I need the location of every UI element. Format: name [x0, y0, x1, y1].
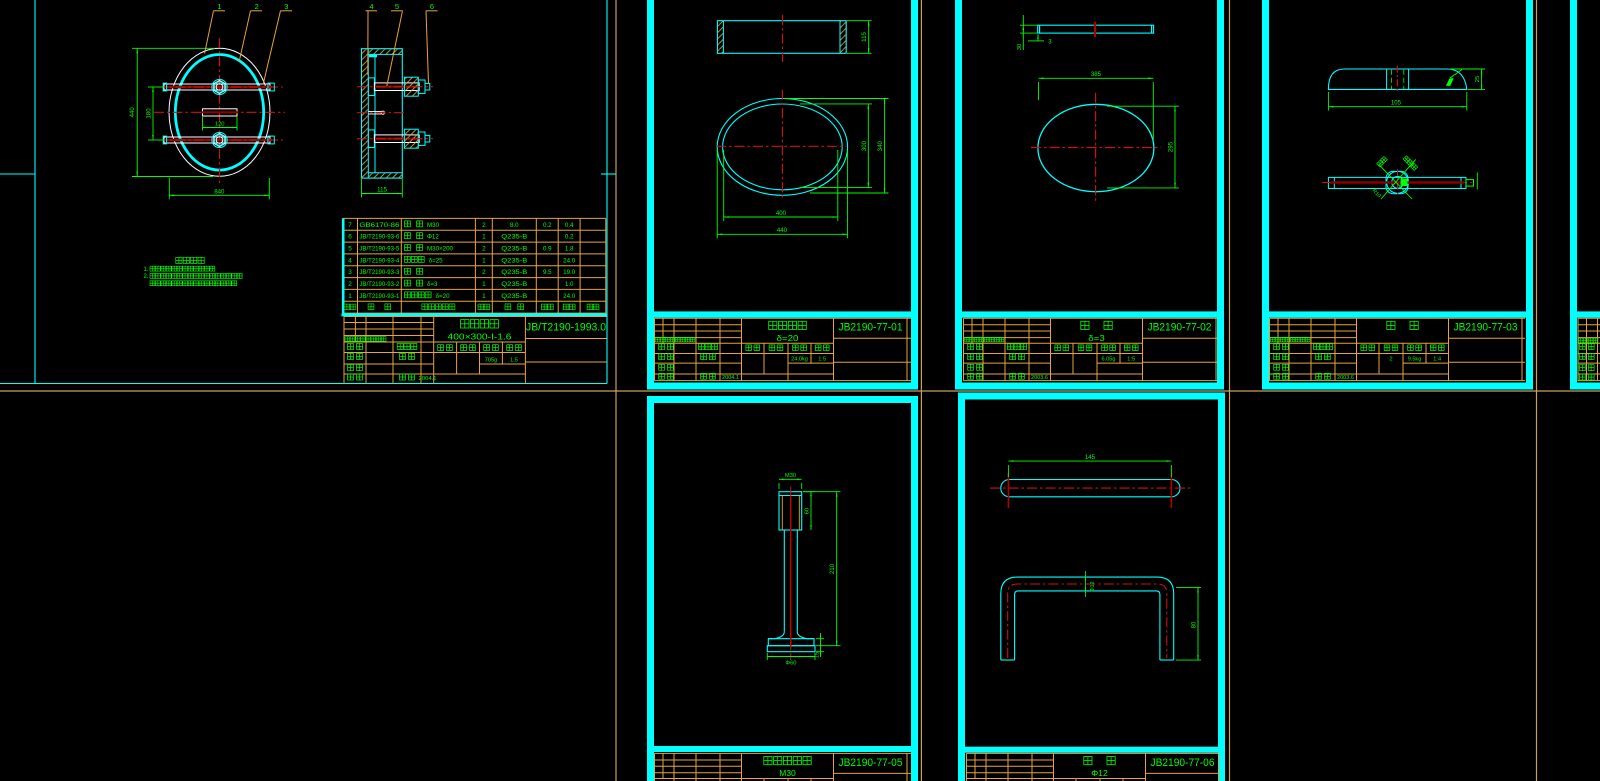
- svg-text:JB/T2190-93-1: JB/T2190-93-1: [359, 294, 400, 300]
- svg-text:Q235-B: Q235-B: [501, 234, 527, 241]
- svg-text:0.2: 0.2: [543, 222, 552, 229]
- svg-text:8.0: 8.0: [510, 222, 519, 229]
- svg-text:2003.6: 2003.6: [1031, 375, 1048, 381]
- svg-text:0.4: 0.4: [565, 222, 574, 229]
- svg-text:7: 7: [348, 222, 352, 229]
- svg-text:300: 300: [861, 140, 868, 151]
- svg-text:2004.1: 2004.1: [419, 376, 437, 382]
- svg-text:2003.6: 2003.6: [1337, 375, 1354, 381]
- svg-text:30: 30: [1017, 44, 1023, 50]
- svg-text:385: 385: [1091, 71, 1102, 78]
- svg-text:6: 6: [348, 234, 352, 241]
- svg-text:295: 295: [1167, 141, 1174, 152]
- svg-text:Φ60: Φ60: [785, 661, 796, 667]
- svg-text:1: 1: [482, 281, 486, 288]
- svg-text:JB/T2190-93-3: JB/T2190-93-3: [359, 270, 400, 276]
- svg-text:340: 340: [877, 141, 884, 152]
- svg-text:1:5: 1:5: [510, 357, 518, 363]
- svg-text:JB2190-77-05: JB2190-77-05: [839, 757, 903, 769]
- svg-text:JB2190-77-03: JB2190-77-03: [1454, 322, 1518, 334]
- svg-text:1:5: 1:5: [818, 357, 826, 363]
- svg-text:80: 80: [1191, 621, 1198, 628]
- svg-text:120: 120: [215, 121, 225, 127]
- svg-text:180: 180: [145, 108, 152, 119]
- svg-text:δ=20: δ=20: [436, 293, 450, 300]
- svg-text:JB/T2190-93-4: JB/T2190-93-4: [359, 258, 400, 264]
- svg-text:2: 2: [255, 2, 259, 11]
- svg-text:1.: 1.: [144, 267, 149, 273]
- svg-text:5: 5: [395, 2, 399, 11]
- svg-text:Q235-B: Q235-B: [501, 246, 527, 253]
- svg-text:2: 2: [1389, 357, 1392, 363]
- svg-text:400×300-I-1.6: 400×300-I-1.6: [448, 333, 513, 342]
- svg-text:4: 4: [348, 257, 352, 264]
- svg-text:2004.1: 2004.1: [722, 375, 739, 381]
- svg-text:1: 1: [482, 293, 486, 300]
- svg-text:24.0kg: 24.0kg: [791, 357, 808, 363]
- svg-text:JB/T2190-93-5: JB/T2190-93-5: [359, 247, 400, 253]
- svg-text:δ=20: δ=20: [777, 334, 800, 343]
- svg-text:M30: M30: [427, 222, 440, 229]
- svg-text:1: 1: [217, 2, 221, 11]
- svg-text:JB2190-77-02: JB2190-77-02: [1148, 322, 1212, 334]
- svg-text:JB2190-77-01: JB2190-77-01: [839, 322, 903, 334]
- svg-text:M30×200: M30×200: [427, 246, 454, 253]
- svg-text:25: 25: [1475, 76, 1481, 82]
- svg-text:2.: 2.: [144, 274, 149, 280]
- svg-text:1:5: 1:5: [1127, 357, 1135, 363]
- svg-text:0.9: 0.9: [543, 246, 552, 253]
- svg-text:GB6170-86: GB6170-86: [359, 223, 400, 229]
- svg-text:1: 1: [348, 293, 352, 300]
- svg-text:Q235-B: Q235-B: [501, 257, 527, 264]
- svg-text:24.0: 24.0: [563, 293, 576, 300]
- svg-text:6.05g: 6.05g: [1102, 357, 1116, 363]
- svg-text:δ=25: δ=25: [429, 257, 443, 264]
- svg-text:60: 60: [805, 508, 811, 514]
- svg-text:145: 145: [1085, 454, 1096, 461]
- svg-text:Φ12: Φ12: [1090, 581, 1096, 591]
- svg-text:JB2190-77-06: JB2190-77-06: [1151, 757, 1215, 769]
- svg-text:3: 3: [348, 269, 352, 276]
- svg-text:Φ12: Φ12: [1091, 769, 1108, 778]
- svg-text:1: 1: [482, 257, 486, 264]
- svg-text:Q235-B: Q235-B: [501, 269, 527, 276]
- svg-text:19.0: 19.0: [563, 269, 576, 276]
- svg-text:1.8: 1.8: [565, 246, 574, 253]
- svg-text:4: 4: [369, 2, 373, 11]
- svg-text:Q235-B: Q235-B: [501, 281, 527, 288]
- svg-text:δ=3: δ=3: [427, 281, 438, 288]
- svg-text:115: 115: [377, 187, 387, 194]
- svg-text:9.5kg: 9.5kg: [1408, 357, 1422, 363]
- svg-text:210: 210: [829, 563, 836, 574]
- svg-text:M30: M30: [779, 769, 796, 778]
- svg-text:3: 3: [284, 2, 288, 11]
- svg-text:JB/T2190-93-6: JB/T2190-93-6: [359, 235, 400, 241]
- svg-text:9.5: 9.5: [543, 269, 552, 276]
- svg-text:2: 2: [482, 222, 486, 229]
- svg-text:5: 5: [348, 246, 352, 253]
- svg-text:440: 440: [777, 227, 788, 234]
- svg-text:Q235-B: Q235-B: [501, 293, 527, 300]
- svg-text:M30: M30: [785, 473, 796, 479]
- svg-text:105: 105: [1391, 100, 1402, 107]
- svg-text:Φ12: Φ12: [427, 234, 439, 241]
- svg-text:6: 6: [430, 2, 434, 11]
- svg-text:JB/T2190-1993.0: JB/T2190-1993.0: [526, 322, 606, 334]
- svg-text:840: 840: [214, 188, 225, 195]
- svg-text:1: 1: [482, 234, 486, 241]
- svg-text:1:4: 1:4: [1433, 357, 1441, 363]
- svg-text:400: 400: [776, 210, 787, 217]
- svg-text:1.0: 1.0: [565, 281, 574, 288]
- svg-text:JB/T2190-93-2: JB/T2190-93-2: [359, 282, 400, 288]
- svg-text:δ=3: δ=3: [1088, 334, 1105, 343]
- svg-text:24.0: 24.0: [563, 257, 576, 264]
- svg-text:115: 115: [861, 32, 868, 42]
- svg-text:0.2: 0.2: [565, 234, 574, 241]
- svg-text:2: 2: [482, 269, 486, 276]
- svg-text:705g: 705g: [485, 357, 497, 363]
- svg-text:440: 440: [129, 107, 136, 118]
- svg-text:2: 2: [348, 281, 352, 288]
- svg-text:2: 2: [482, 246, 486, 253]
